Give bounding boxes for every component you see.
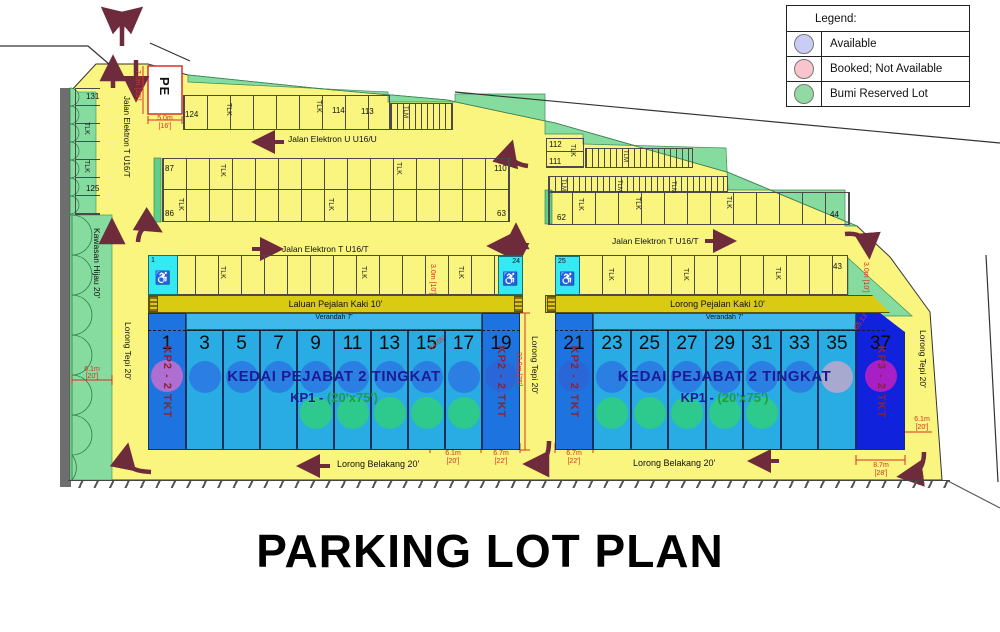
stall-row-tlm-1 bbox=[585, 148, 693, 168]
accessible-stall-1[interactable]: 1 ♿ bbox=[148, 255, 178, 295]
tlm-label: TLM bbox=[402, 106, 408, 118]
legend-label: Bumi Reserved Lot bbox=[822, 88, 928, 100]
lot-number: 13 bbox=[372, 333, 407, 355]
right-block-title: KEDAI PEJABAT 2 TINGKAT bbox=[593, 368, 856, 385]
verandah-right: Verandah 7' bbox=[593, 313, 856, 330]
tlk-label: TLK bbox=[225, 103, 232, 116]
legend-swatch-cell bbox=[787, 82, 822, 106]
walkway-lorong-pejalan-label: Lorong Pejalan Kaki 10' bbox=[670, 299, 765, 309]
accessible-stall-24[interactable]: 24 ♿ bbox=[498, 256, 523, 295]
stall-number-131: 131 bbox=[86, 92, 99, 101]
stall-row-laluan-right bbox=[555, 255, 848, 295]
dim-walkway-right: 3.0m [10'] bbox=[862, 262, 869, 293]
tlk-label: TLK bbox=[569, 144, 576, 157]
stairs-hatch bbox=[514, 296, 523, 312]
tlk-label: TLK bbox=[315, 100, 322, 113]
stall-number-114: 114 bbox=[332, 106, 345, 115]
lot-number: 29 bbox=[707, 333, 742, 355]
tlm-label: TLM bbox=[670, 181, 676, 193]
tlm-label: TLM bbox=[622, 150, 628, 162]
lot-number: 17 bbox=[446, 333, 481, 355]
accessible-stall-25-number: 25 bbox=[558, 258, 566, 265]
stall-number-125: 125 bbox=[86, 184, 99, 193]
stall-number-113: 113 bbox=[361, 107, 374, 116]
dim-pe-width-m: 5.0m bbox=[150, 115, 180, 122]
wheelchair-icon: ♿ bbox=[155, 270, 171, 286]
dim-61-m: 6.1m bbox=[438, 450, 468, 457]
dim-87-m: 8.7m bbox=[865, 462, 897, 469]
tlk-label: TLK bbox=[83, 122, 90, 135]
stall-number-110: 110 bbox=[494, 164, 507, 173]
stall-row-laluan-left bbox=[148, 255, 523, 295]
accessible-stall-25[interactable]: 25 ♿ bbox=[555, 256, 580, 295]
right-block-kp1: KP1 - bbox=[681, 390, 718, 405]
legend-item-bumi: Bumi Reserved Lot bbox=[787, 81, 969, 106]
legend: Legend: Available Booked; Not Available … bbox=[786, 5, 970, 107]
left-block-title: KEDAI PEJABAT 2 TINGKAT bbox=[186, 368, 482, 385]
verandah-left-label: Verandah 7' bbox=[315, 314, 352, 321]
stall-row-top bbox=[183, 95, 390, 130]
lot-number: 31 bbox=[744, 333, 780, 355]
booked-circle-icon bbox=[794, 59, 814, 79]
left-block-subtitle: KP1 - (20'x75') bbox=[186, 390, 482, 405]
tlk-label: TLK bbox=[682, 268, 689, 281]
legend-item-available: Available bbox=[787, 31, 969, 56]
legend-header: Legend: bbox=[787, 6, 969, 31]
tlk-label: TLK bbox=[395, 162, 402, 175]
left-block-kp1: KP1 - bbox=[290, 390, 327, 405]
walkway-laluan-label: Laluan Pejalan Kaki 10' bbox=[289, 299, 383, 309]
lot-kp-label: KP2 - 2 TKT bbox=[495, 345, 507, 418]
dim-67-ft: [22'] bbox=[486, 458, 516, 465]
stall-row-top-tlm bbox=[390, 103, 453, 130]
tlk-label: TLK bbox=[725, 196, 732, 209]
lot-number: 35 bbox=[819, 333, 855, 355]
dim-lot-depth: 22.9m [75'] bbox=[515, 352, 522, 386]
tlk-label: TLK bbox=[607, 268, 614, 281]
tlk-label: TLK bbox=[219, 266, 226, 279]
tlk-label: TLK bbox=[327, 198, 334, 211]
walkway-laluan: Laluan Pejalan Kaki 10' bbox=[148, 295, 523, 313]
dim-pe-width-ft: [16'] bbox=[150, 123, 180, 130]
legend-item-booked: Booked; Not Available bbox=[787, 56, 969, 81]
lot-37[interactable]: 37 KP3 - 2 TKT bbox=[856, 313, 905, 450]
lot-kp-label: KP2 - 2 TKT bbox=[161, 345, 173, 418]
pe-label: PE bbox=[157, 77, 172, 96]
walkway-lorong-pejalan: Lorong Pejalan Kaki 10' bbox=[545, 295, 890, 313]
legend-label: Booked; Not Available bbox=[822, 63, 942, 75]
dim-61l-ft: [20'] bbox=[76, 373, 108, 380]
fence-corner-line bbox=[948, 481, 1000, 508]
lorong-belakang-left-label: Lorong Belakang 20' bbox=[337, 459, 419, 469]
stairs-hatch bbox=[149, 296, 158, 312]
stall-row-mid-lower bbox=[162, 190, 510, 222]
tlk-label: TLK bbox=[634, 197, 641, 210]
lot-21[interactable]: 21 KP2 - 2 TKT bbox=[555, 313, 593, 450]
parking-lot-plan: 1 ♿ 24 ♿ 25 ♿ Laluan Pejalan Kaki 10' Lo… bbox=[0, 0, 1000, 632]
lorong-belakang-right-label: Lorong Belakang 20' bbox=[633, 458, 715, 468]
tlk-label: TLK bbox=[83, 160, 90, 173]
lot-kp-label: KP2 - 2 TKT bbox=[568, 345, 580, 418]
bumi-circle-icon bbox=[794, 84, 814, 104]
lot-number: 3 bbox=[187, 333, 222, 355]
fork-arrow-right bbox=[122, 11, 138, 30]
road-label-jalan-t-left-vertical: Jalan Elektron T U16/T bbox=[122, 96, 131, 178]
fork-arrow-left bbox=[106, 11, 122, 30]
dim-67-m: 6.7m bbox=[486, 450, 516, 457]
lot-number: 11 bbox=[335, 333, 370, 355]
accessible-stall-1-number: 1 bbox=[151, 257, 155, 264]
dim-61r-m: 6.1m bbox=[906, 416, 938, 423]
available-circle-icon bbox=[794, 34, 814, 54]
tlm-label: TLM bbox=[560, 179, 566, 191]
kawasan-hijau-label: Kawasan Hijau 20' bbox=[92, 228, 102, 298]
road-label-jalan-t-right: Jalan Elektron T U16/T bbox=[612, 236, 699, 246]
lot-number: 33 bbox=[782, 333, 817, 355]
stall-row-mid-upper bbox=[162, 158, 510, 190]
lot-number: 5 bbox=[224, 333, 259, 355]
lorong-tepi-left-label: Lorong Tepi 20' bbox=[123, 322, 133, 380]
road-label-jalan-t-center: Jalan Elektron T U16/T bbox=[282, 244, 369, 254]
verandah-left: Verandah 7' bbox=[186, 313, 482, 330]
dim-61r-ft: [20'] bbox=[906, 424, 938, 431]
lot-number: 23 bbox=[594, 333, 630, 355]
tlm-label: TLM bbox=[616, 180, 622, 192]
tlk-label: TLK bbox=[177, 198, 184, 211]
verandah-dash-left bbox=[148, 330, 520, 331]
dim-walkway-left: 3.0m [10'] bbox=[429, 264, 436, 295]
right-block-dim: (20'x75') bbox=[717, 390, 768, 405]
page-title: PARKING LOT PLAN bbox=[180, 524, 800, 578]
stall-number-111: 111 bbox=[549, 157, 561, 166]
stall-number-63: 63 bbox=[497, 209, 506, 218]
stall-number-86: 86 bbox=[165, 209, 174, 218]
wheelchair-icon: ♿ bbox=[559, 271, 575, 287]
verandah-right-label: Verandah 7' bbox=[706, 314, 743, 321]
lot-number: 25 bbox=[632, 333, 667, 355]
verandah-dash-right bbox=[555, 330, 885, 331]
legend-swatch-cell bbox=[787, 57, 822, 81]
lot-1[interactable]: 1 KP2 - 2 TKT bbox=[148, 313, 186, 450]
tlk-label: TLK bbox=[457, 266, 464, 279]
tlk-label: TLK bbox=[774, 267, 781, 280]
legend-label: Available bbox=[822, 38, 876, 50]
accessible-stall-24-number: 24 bbox=[512, 258, 520, 265]
dim-87-ft: [28'] bbox=[865, 470, 897, 477]
stall-row-tlm-2 bbox=[548, 176, 728, 192]
stall-number-87: 87 bbox=[165, 164, 174, 173]
tlk-label: TLK bbox=[577, 198, 584, 211]
road-label-jalan-u: Jalan Elektron U U16/U bbox=[288, 134, 377, 144]
stall-row-left-column bbox=[75, 88, 100, 215]
lorong-tepi-mid-label: Lorong Tepi 20' bbox=[530, 336, 540, 394]
dim-pe-height: 7.0m [23'] bbox=[134, 70, 141, 101]
dim-61-ft: [20'] bbox=[438, 458, 468, 465]
legend-header-text: Legend: bbox=[815, 13, 857, 25]
left-block-dim: (20'x75') bbox=[327, 390, 378, 405]
dim-61l-m: 6.1m bbox=[76, 366, 108, 373]
stall-number-43: 43 bbox=[833, 262, 842, 271]
stairs-hatch bbox=[547, 296, 556, 312]
lot-number: 27 bbox=[669, 333, 705, 355]
boundary-fence bbox=[68, 480, 950, 488]
wheelchair-icon: ♿ bbox=[502, 271, 518, 287]
stall-number-62: 62 bbox=[557, 213, 566, 222]
right-block-subtitle: KP1 - (20'x75') bbox=[593, 390, 856, 405]
stall-number-44: 44 bbox=[830, 210, 839, 219]
dim-67r-m: 6.7m bbox=[559, 450, 589, 457]
stall-row-right bbox=[548, 192, 850, 225]
stall-number-112: 112 bbox=[549, 140, 562, 149]
lot-number: 7 bbox=[261, 333, 296, 355]
lot-kp-label: KP3 - 2 TKT bbox=[875, 345, 887, 418]
tlk-label: TLK bbox=[219, 164, 226, 177]
lorong-tepi-right-label: Lorong Tepi 20' bbox=[918, 330, 928, 388]
dim-67r-ft: [22'] bbox=[559, 458, 589, 465]
tlk-label: TLK bbox=[360, 266, 367, 279]
site-left-boundary bbox=[60, 88, 71, 487]
lot-number: 9 bbox=[298, 333, 333, 355]
stall-number-124: 124 bbox=[185, 110, 198, 119]
legend-swatch-cell bbox=[787, 32, 822, 56]
green-bar-mid bbox=[154, 158, 161, 222]
